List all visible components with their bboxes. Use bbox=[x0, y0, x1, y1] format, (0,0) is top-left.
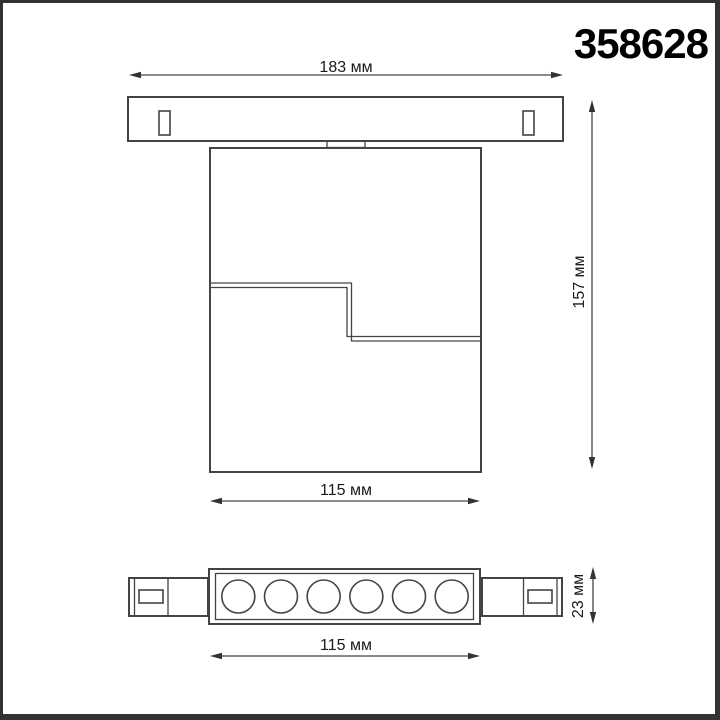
dim-label-body-width: 115 мм bbox=[320, 482, 372, 499]
dim-body-width: 115 мм bbox=[210, 482, 480, 504]
bottom-view bbox=[129, 569, 562, 624]
arrow-right-icon bbox=[468, 653, 480, 659]
dim-label-module-height: 23 мм bbox=[570, 574, 587, 618]
arrow-down-icon bbox=[589, 457, 595, 469]
front-view bbox=[128, 97, 563, 472]
dim-label-overall-height: 157 мм bbox=[571, 255, 588, 308]
dim-label-module-width: 115 мм bbox=[320, 637, 372, 654]
arrow-up-icon bbox=[589, 100, 595, 112]
drawing-page: 183 мм 157 мм 115 мм 23 мм bbox=[0, 0, 720, 720]
arrow-left-icon bbox=[210, 653, 222, 659]
led-lens bbox=[393, 580, 426, 613]
left-connector-slot bbox=[139, 590, 163, 603]
arrow-right-icon bbox=[551, 72, 563, 78]
technical-drawing: 183 мм 157 мм 115 мм 23 мм bbox=[0, 0, 720, 720]
led-lens bbox=[264, 580, 297, 613]
led-lens bbox=[350, 580, 383, 613]
product-code: 358628 bbox=[574, 20, 709, 67]
body-seam-outer-line bbox=[209, 283, 482, 341]
led-lens bbox=[307, 580, 340, 613]
arrow-left-icon bbox=[129, 72, 141, 78]
dim-track-width: 183 мм bbox=[129, 59, 563, 78]
dim-label-track-width: 183 мм bbox=[319, 59, 372, 76]
arrow-up-icon bbox=[590, 567, 596, 579]
led-lens bbox=[435, 580, 468, 613]
led-module-outline bbox=[209, 569, 480, 624]
lamp-body-outline bbox=[210, 148, 481, 472]
dim-module-width: 115 мм bbox=[210, 637, 480, 659]
led-lenses bbox=[222, 580, 468, 613]
arrow-down-icon bbox=[590, 612, 596, 624]
arrow-left-icon bbox=[210, 498, 222, 504]
dim-module-height: 23 мм bbox=[570, 567, 596, 624]
dim-overall-height: 157 мм bbox=[571, 100, 595, 469]
track-slot-left bbox=[159, 111, 170, 135]
right-connector-slot bbox=[528, 590, 552, 603]
track-slot-right bbox=[523, 111, 534, 135]
arrow-right-icon bbox=[468, 498, 480, 504]
led-lens bbox=[222, 580, 255, 613]
right-track-connector bbox=[482, 578, 562, 616]
track-outline bbox=[128, 97, 563, 141]
body-seam-inner-line bbox=[209, 288, 482, 337]
